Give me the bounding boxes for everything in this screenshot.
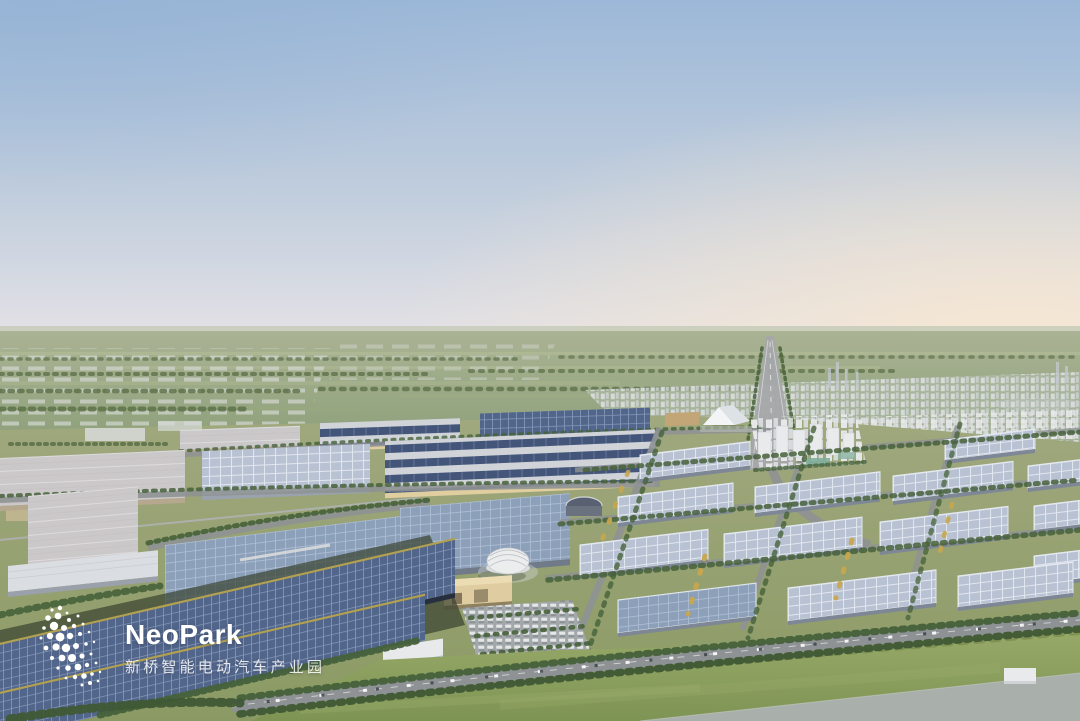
sky [0, 0, 1080, 348]
logo-text: NeoPark 新桥智能电动汽车产业园 [125, 621, 325, 677]
logo-brand: NeoPark [125, 621, 325, 649]
arc-building [566, 497, 602, 516]
residential-cluster [750, 414, 866, 470]
aerial-render-neopark: NeoPark 新桥智能电动汽车产业园 [0, 0, 1080, 721]
logo-subtitle: 新桥智能电动汽车产业园 [125, 656, 325, 677]
logo: NeoPark 新桥智能电动汽车产业园 [36, 604, 325, 694]
particle-swarm-icon [36, 604, 110, 694]
